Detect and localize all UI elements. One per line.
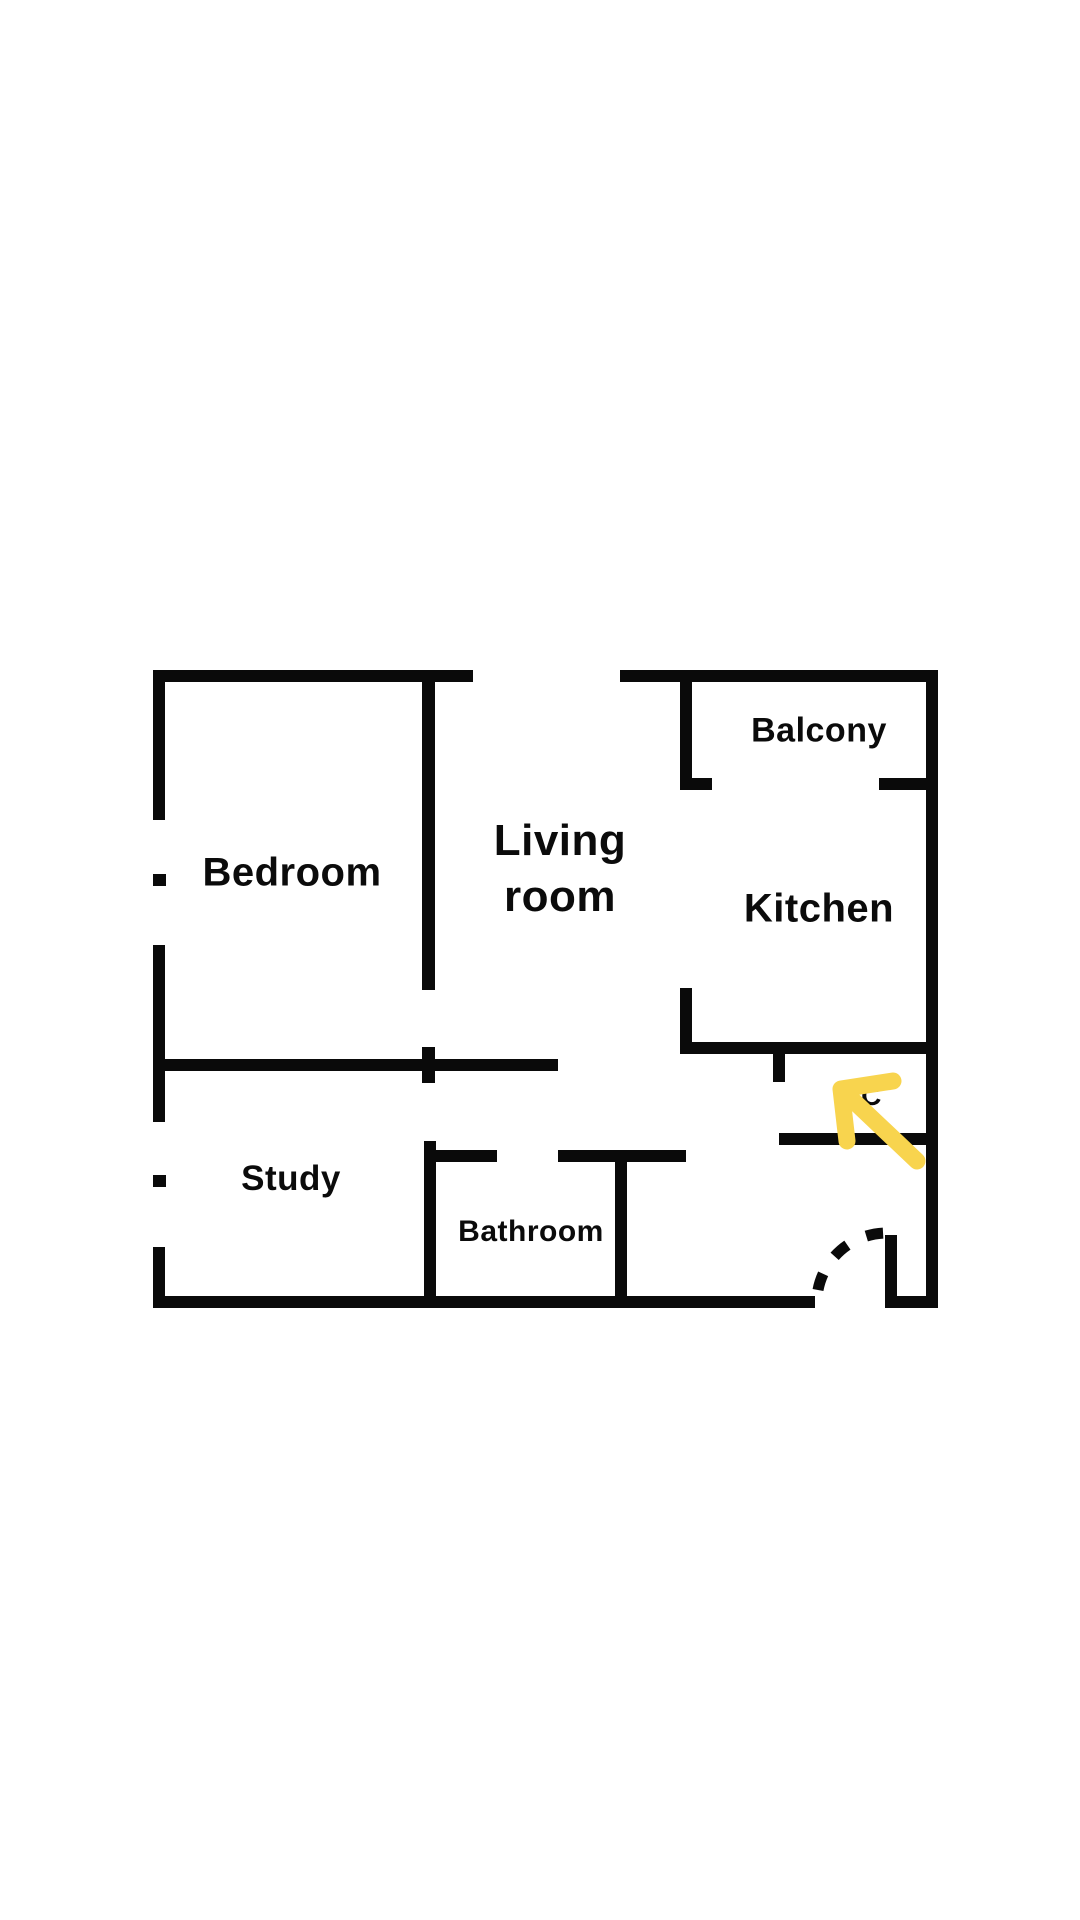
entry-door-swing-arc bbox=[818, 1233, 887, 1290]
study-label: Study bbox=[241, 1159, 341, 1199]
wall-bottom-left-segment bbox=[153, 1296, 815, 1308]
wall-top-right-segment bbox=[620, 670, 938, 682]
bathroom-left-wall bbox=[424, 1141, 436, 1308]
floor-plan: Bedroom Living room Balcony Kitchen Stud… bbox=[0, 0, 1080, 1920]
kitchen-bottom-wall bbox=[680, 1042, 938, 1054]
entry-door-jamb bbox=[885, 1235, 897, 1308]
middle-horizontal-wall bbox=[153, 1059, 558, 1071]
bedroom-label: Bedroom bbox=[202, 851, 381, 896]
balcony-label: Balcony bbox=[751, 712, 887, 751]
living-room-label-line2: room bbox=[494, 869, 627, 925]
bedroom-door-dash bbox=[153, 874, 166, 886]
bedroom-living-divider bbox=[422, 682, 435, 990]
wall-left-top-segment bbox=[153, 670, 165, 820]
bathroom-label: Bathroom bbox=[458, 1215, 604, 1249]
wall-right bbox=[926, 670, 938, 1308]
wc-left-tick bbox=[773, 1054, 785, 1082]
balcony-left-wall bbox=[680, 682, 692, 790]
balcony-left-foot bbox=[680, 778, 712, 790]
bathroom-right-wall bbox=[615, 1150, 627, 1308]
wc-label: WC bbox=[834, 1080, 882, 1112]
wc-bottom-wall bbox=[779, 1133, 938, 1145]
kitchen-label: Kitchen bbox=[744, 887, 894, 932]
wall-left-middle-segment bbox=[153, 945, 165, 1122]
wall-top-left-segment bbox=[153, 670, 473, 682]
living-room-label: Living room bbox=[494, 813, 627, 925]
living-room-label-line1: Living bbox=[494, 813, 627, 869]
study-door-dash bbox=[153, 1175, 166, 1187]
balcony-bottom-right-wall bbox=[879, 778, 938, 790]
